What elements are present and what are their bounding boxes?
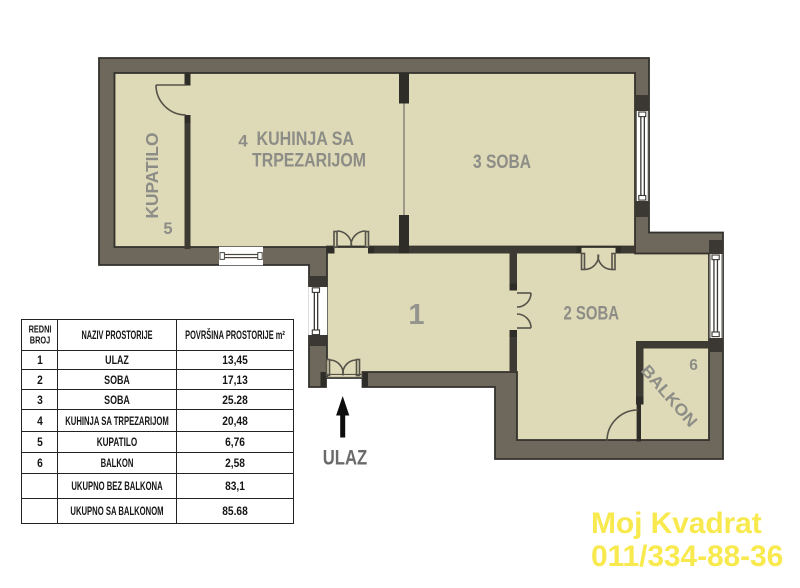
svg-text:1: 1 — [408, 299, 424, 331]
svg-text:5: 5 — [163, 220, 172, 238]
svg-text:3 SOBA: 3 SOBA — [473, 152, 531, 173]
svg-text:ULAZ: ULAZ — [323, 447, 368, 470]
svg-text:TRPEZARIJOM: TRPEZARIJOM — [252, 151, 366, 172]
svg-text:6: 6 — [689, 357, 698, 374]
svg-text:2 SOBA: 2 SOBA — [564, 304, 620, 325]
svg-text:4: 4 — [238, 132, 248, 151]
svg-text:KUPATILO: KUPATILO — [142, 133, 162, 219]
svg-text:KUHINJA SA: KUHINJA SA — [257, 129, 355, 150]
